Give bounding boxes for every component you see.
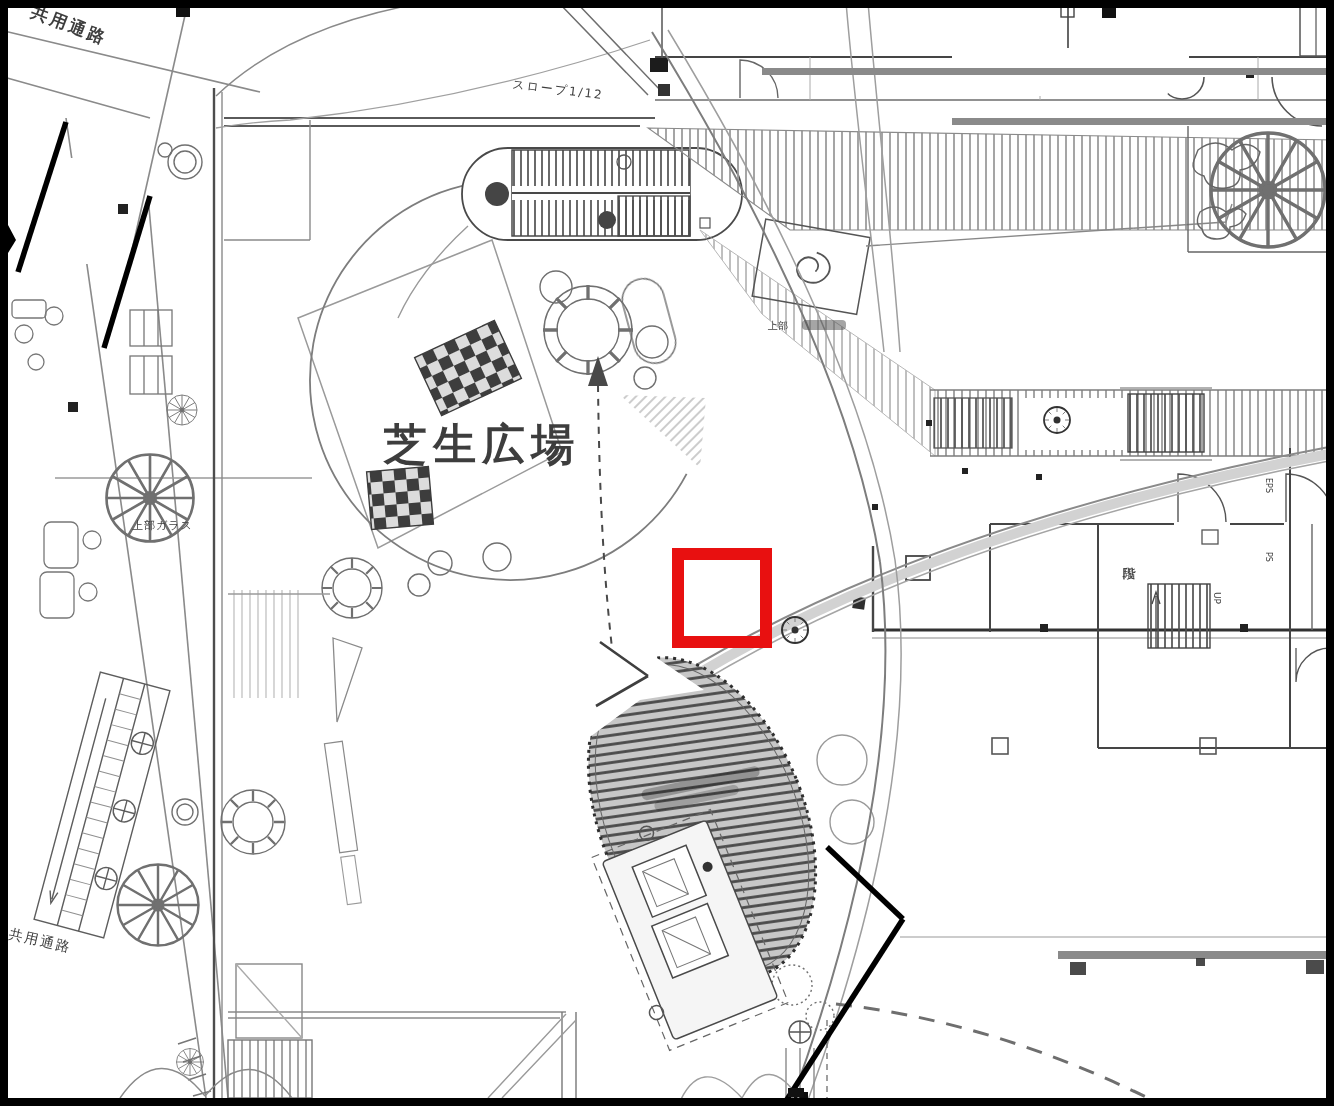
copier-bar-top-1	[762, 68, 1334, 75]
redaction-patch-bottom-left	[12, 968, 112, 1052]
copier-bar-bottom	[1058, 951, 1334, 959]
up-label: UP	[1212, 592, 1222, 605]
lawn-plaza-label: 芝生広場	[383, 419, 580, 469]
stair-room	[1148, 584, 1210, 648]
eps-label: EPS	[1264, 478, 1273, 493]
upper-note-label: 上部	[767, 320, 788, 331]
copier-bar-top-2	[952, 118, 1334, 125]
site-plan-scan: 芝生広場 共用通路 共用通路 上部ガラス スロープ1/12 階段 UP EPS …	[0, 0, 1334, 1106]
upper-note-smudge	[802, 320, 846, 330]
plan-canvas: 芝生広場 共用通路 共用通路 上部ガラス スロープ1/12 階段 UP EPS …	[0, 0, 1334, 1106]
ps-label: PS	[1264, 552, 1273, 562]
redaction-patch-top-right-2	[1085, 30, 1189, 62]
right-deck-hatch	[930, 388, 1334, 460]
glass-above-label: 上部ガラス	[132, 519, 193, 532]
play-equipment-checker-2	[367, 466, 434, 529]
